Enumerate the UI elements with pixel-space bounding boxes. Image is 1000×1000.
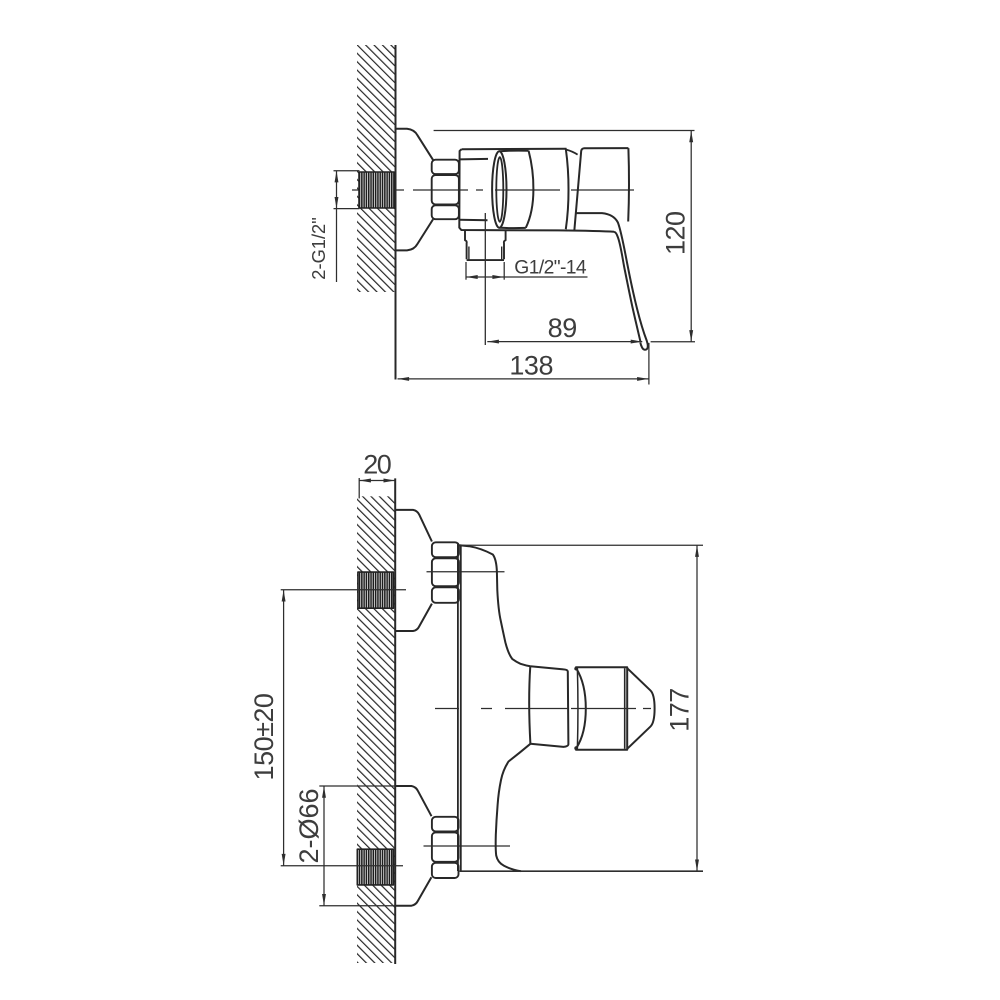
svg-text:20: 20 (363, 449, 391, 479)
svg-text:2-G1/2": 2-G1/2" (308, 217, 329, 279)
svg-text:2-Ø66: 2-Ø66 (294, 788, 324, 863)
svg-text:138: 138 (509, 350, 553, 380)
svg-text:89: 89 (548, 313, 577, 343)
svg-text:177: 177 (665, 688, 695, 732)
svg-text:150±20: 150±20 (249, 694, 279, 781)
svg-text:G1/2"-14: G1/2"-14 (514, 258, 587, 279)
svg-text:120: 120 (661, 211, 691, 255)
